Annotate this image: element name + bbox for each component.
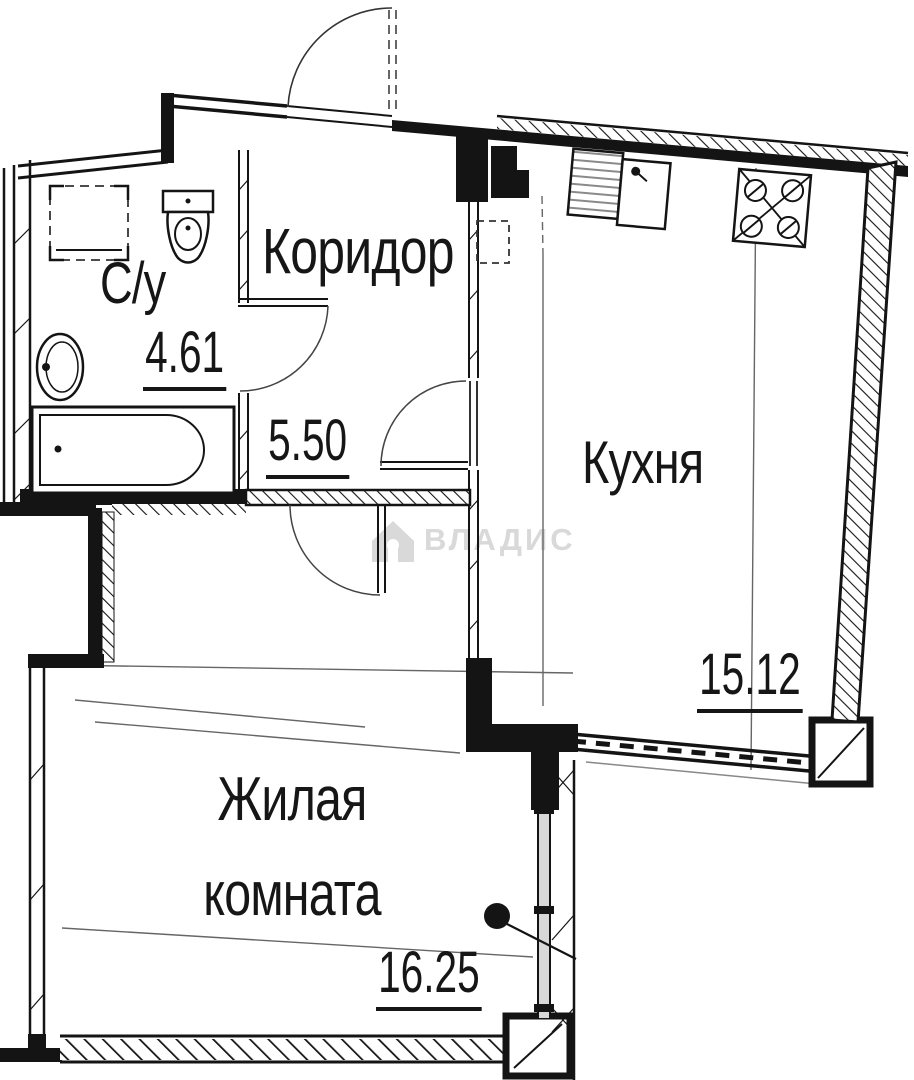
toilet-icon bbox=[163, 191, 213, 263]
kitchen-window-wall bbox=[572, 720, 870, 786]
leader-marker bbox=[484, 903, 576, 959]
top-exterior-wall bbox=[161, 93, 908, 177]
corridor-bottom-wall bbox=[246, 490, 470, 505]
bathtub-icon bbox=[32, 407, 234, 493]
stove-icon bbox=[733, 169, 811, 247]
bathroom-partition bbox=[239, 150, 248, 492]
living-room-bottom-wall bbox=[60, 1016, 570, 1076]
plan-drawing bbox=[0, 0, 914, 1080]
living-room-left-wall bbox=[0, 660, 62, 1062]
kitchen-sink-icon bbox=[567, 149, 671, 229]
entrance-door bbox=[288, 8, 396, 112]
bathroom-door bbox=[238, 299, 328, 391]
mid-left-walls bbox=[0, 489, 248, 668]
sink-icon bbox=[37, 334, 83, 400]
vent-duct bbox=[491, 146, 529, 198]
hall-kitchen-junction-walls bbox=[466, 658, 578, 810]
floor-plan-page: ВЛАДИС bbox=[0, 0, 914, 1080]
right-exterior-wall bbox=[832, 162, 896, 722]
kitchen-door bbox=[380, 381, 477, 469]
washing-machine-icon bbox=[50, 186, 128, 260]
hall-door bbox=[290, 505, 385, 595]
fridge-dashed-outline bbox=[477, 221, 509, 263]
kitchen-partition bbox=[456, 136, 488, 660]
thin-reference-lines bbox=[55, 168, 756, 957]
